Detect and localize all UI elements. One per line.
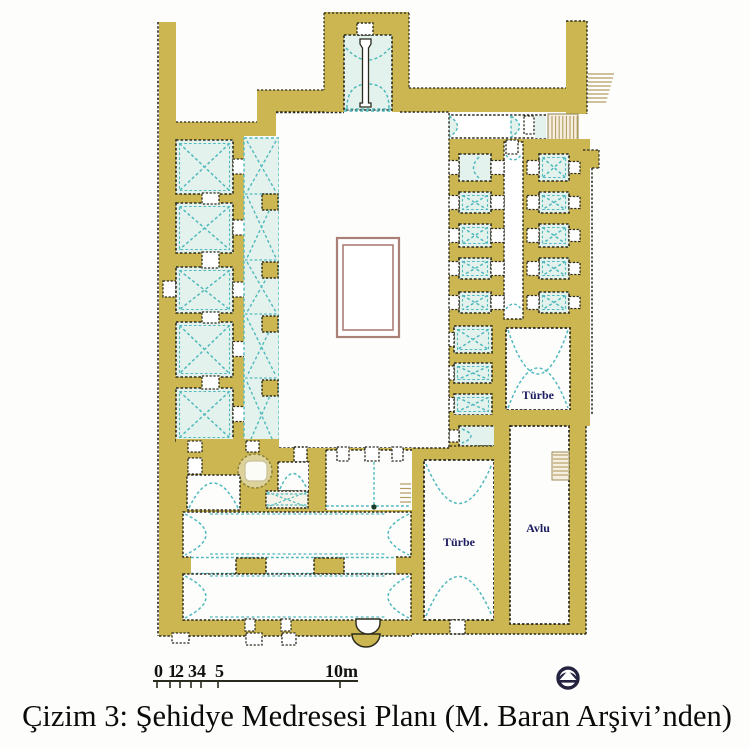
svg-text:Türbe: Türbe <box>522 388 555 402</box>
svg-text:0: 0 <box>154 661 163 681</box>
svg-text:3: 3 <box>188 661 197 681</box>
svg-text:5: 5 <box>215 661 224 681</box>
svg-text:2: 2 <box>175 661 184 681</box>
svg-text:4: 4 <box>197 661 206 681</box>
svg-text:10m: 10m <box>325 661 358 681</box>
svg-text:Avlu: Avlu <box>526 521 550 535</box>
svg-text:Türbe: Türbe <box>443 535 476 549</box>
svg-text:Çizim 3: Şehidye Medresesi Pla: Çizim 3: Şehidye Medresesi Planı (M. Bar… <box>22 699 732 733</box>
